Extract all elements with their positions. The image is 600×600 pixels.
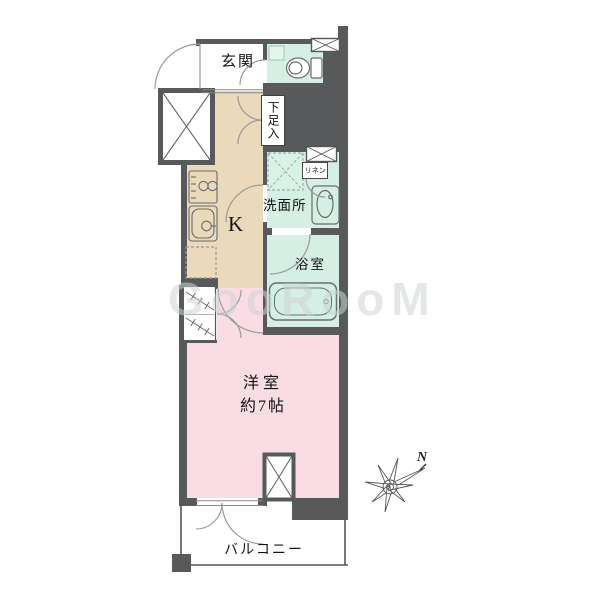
balcony-door-arc <box>222 503 263 544</box>
compass-rose-icon <box>365 458 426 512</box>
vent-hatch-icon <box>312 39 340 52</box>
linen-label: リネン <box>304 165 325 175</box>
kitchen-label: K <box>228 212 243 237</box>
washroom-label: 洗面所 <box>263 194 307 214</box>
toilet-counter <box>269 46 284 60</box>
kitchen-floor-doorway <box>218 278 263 288</box>
bathroom-floor <box>267 235 339 327</box>
shoe-storage-label: 下足入 <box>267 101 279 140</box>
floor-plan-canvas: GooRooM 玄関 下足入 K 洗面所 リネン 浴室 洋室 約7帖 バルコニー… <box>0 0 600 600</box>
western-room-name: 洋室 <box>187 372 339 395</box>
balcony-door-arc <box>196 503 222 529</box>
linen-box: リネン <box>302 162 328 179</box>
toilet-icon <box>287 58 323 78</box>
pipe-space-x-icon <box>161 91 213 163</box>
western-room-label: 洋室 約7帖 <box>187 372 339 418</box>
bath-door-gap <box>272 228 311 235</box>
closet <box>184 287 216 340</box>
entrance-door-arc <box>155 44 200 89</box>
genkan-label: 玄関 <box>221 50 255 71</box>
bathroom-label: 浴室 <box>295 253 326 273</box>
compass-north-label: N <box>417 450 427 466</box>
kitchen-floor-lower <box>187 163 263 278</box>
floor-plan-drawing <box>0 0 600 600</box>
washing-machine-space-icon <box>268 153 303 190</box>
shoe-storage-box: 下足入 <box>261 95 285 146</box>
balcony-label: バルコニー <box>180 539 348 559</box>
vent-hatch-icon <box>307 147 337 162</box>
pipe-space-x-icon <box>265 455 294 500</box>
western-room-size: 約7帖 <box>187 395 339 418</box>
